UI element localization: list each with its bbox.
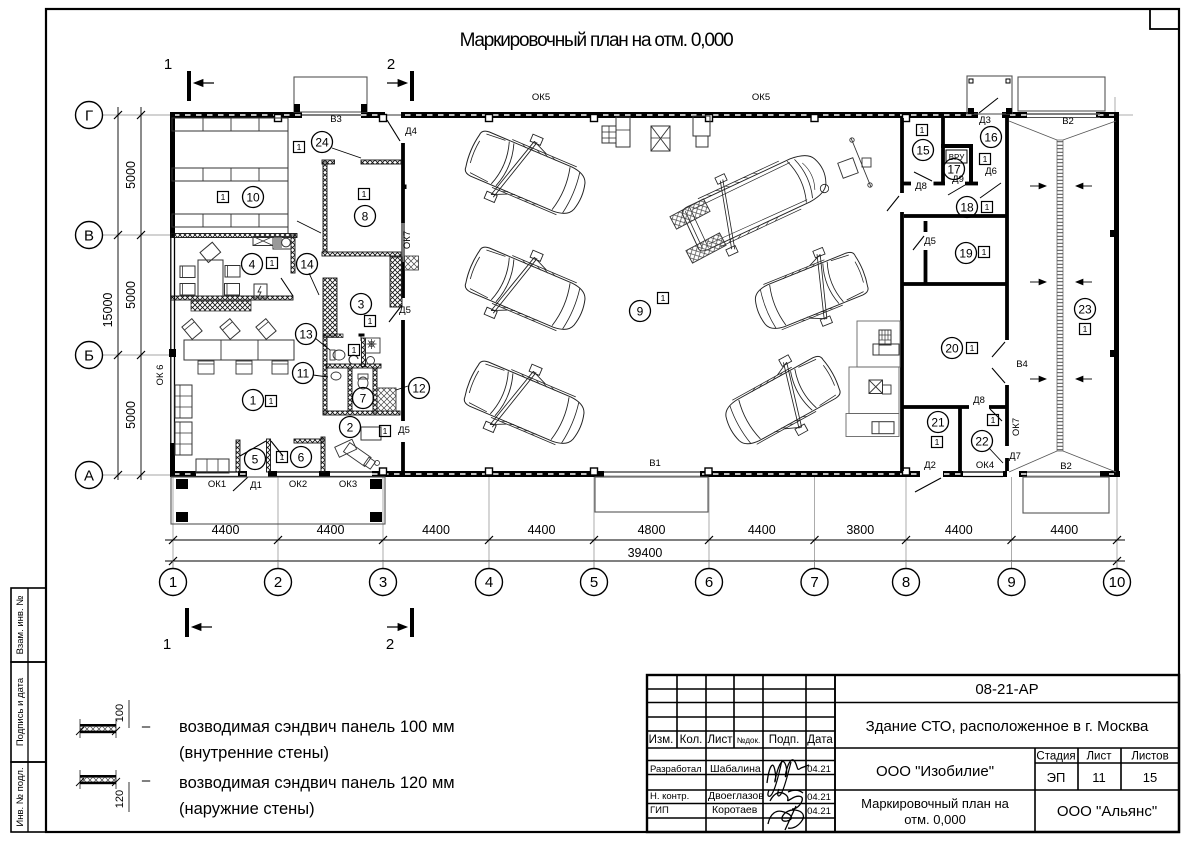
svg-text:2: 2 (387, 56, 395, 73)
svg-text:8: 8 (902, 574, 910, 591)
svg-text:2: 2 (274, 574, 282, 591)
svg-text:4400: 4400 (748, 523, 776, 537)
svg-text:Д8: Д8 (915, 181, 927, 192)
svg-text:–: – (142, 772, 151, 789)
svg-text:10: 10 (1109, 574, 1126, 591)
svg-text:ЭП: ЭП (1047, 770, 1066, 785)
svg-text:ОК4: ОК4 (976, 460, 994, 471)
svg-text:3: 3 (379, 574, 387, 591)
svg-text:04.21: 04.21 (807, 792, 831, 803)
svg-text:Д2: Д2 (924, 460, 936, 471)
svg-text:24: 24 (315, 135, 329, 149)
svg-text:9: 9 (1007, 574, 1015, 591)
svg-text:Шабалина: Шабалина (710, 763, 761, 775)
svg-text:22: 22 (975, 434, 989, 448)
svg-text:Д5: Д5 (399, 305, 411, 316)
svg-text:№док.: №док. (737, 736, 760, 745)
svg-text:Взам. инв. №: Взам. инв. № (15, 596, 26, 655)
svg-text:08-21-АР: 08-21-АР (975, 681, 1038, 698)
svg-text:1: 1 (164, 56, 172, 73)
svg-text:1: 1 (352, 345, 357, 355)
svg-text:19: 19 (959, 246, 973, 260)
svg-text:Д9: Д9 (952, 174, 964, 185)
svg-text:120: 120 (114, 790, 126, 808)
svg-text:Листов: Листов (1131, 751, 1168, 763)
svg-text:7: 7 (360, 391, 367, 405)
svg-text:1: 1 (935, 437, 940, 447)
svg-text:отм. 0,000: отм. 0,000 (904, 812, 966, 827)
svg-text:3800: 3800 (846, 523, 874, 537)
svg-text:ГИП: ГИП (650, 805, 669, 816)
svg-text:Подп.: Подп. (769, 734, 800, 746)
svg-text:1: 1 (250, 393, 257, 407)
svg-text:3: 3 (358, 297, 365, 311)
svg-text:4400: 4400 (1050, 523, 1078, 537)
svg-text:А: А (84, 468, 94, 485)
svg-text:Д5: Д5 (924, 236, 936, 247)
svg-text:В: В (84, 228, 94, 245)
svg-text:4400: 4400 (212, 523, 240, 537)
svg-text:4400: 4400 (528, 523, 556, 537)
svg-text:15: 15 (916, 143, 930, 157)
svg-text:1: 1 (982, 247, 987, 257)
svg-text:Двоеглазов: Двоеглазов (708, 790, 764, 802)
svg-text:1: 1 (383, 426, 388, 436)
svg-text:Д1: Д1 (250, 480, 262, 491)
svg-text:5000: 5000 (124, 281, 138, 309)
svg-text:1: 1 (362, 189, 367, 199)
svg-text:Коротаев: Коротаев (712, 804, 758, 816)
svg-text:Д3: Д3 (979, 115, 991, 126)
svg-text:1: 1 (297, 142, 302, 152)
svg-text:Д6: Д6 (985, 166, 997, 177)
svg-text:7: 7 (810, 574, 818, 591)
svg-text:1: 1 (163, 636, 171, 653)
svg-text:ООО "Изобилие": ООО "Изобилие" (876, 763, 994, 780)
svg-text:5: 5 (590, 574, 598, 591)
svg-text:ОК5: ОК5 (532, 92, 550, 103)
svg-text:2: 2 (347, 420, 354, 434)
svg-text:Б: Б (84, 348, 94, 365)
svg-text:Д4: Д4 (405, 126, 417, 137)
svg-text:Д8: Д8 (973, 395, 985, 406)
svg-text:–: – (142, 718, 151, 735)
svg-text:возводимая сэндвич панель 120: возводимая сэндвич панель 120 мм (179, 774, 455, 792)
svg-text:1: 1 (169, 574, 177, 591)
svg-text:В4: В4 (1016, 359, 1028, 370)
svg-text:11: 11 (297, 366, 310, 380)
svg-text:1: 1 (270, 258, 275, 268)
svg-text:Н. контр.: Н. контр. (650, 791, 689, 802)
svg-text:5000: 5000 (124, 161, 138, 189)
svg-text:6: 6 (298, 450, 305, 464)
svg-text:Инв. № подл.: Инв. № подл. (15, 767, 26, 826)
svg-text:5: 5 (252, 452, 259, 466)
svg-text:1: 1 (280, 452, 285, 462)
svg-text:ОК2: ОК2 (289, 479, 307, 490)
svg-text:14: 14 (300, 257, 314, 271)
svg-text:4400: 4400 (422, 523, 450, 537)
svg-text:1: 1 (1083, 324, 1088, 334)
svg-text:100: 100 (114, 704, 126, 722)
svg-text:21: 21 (931, 415, 945, 429)
svg-text:04.21: 04.21 (807, 806, 831, 817)
svg-text:1: 1 (983, 154, 988, 164)
svg-text:ООО "Альянс": ООО "Альянс" (1057, 803, 1157, 820)
svg-text:Д5: Д5 (398, 425, 410, 436)
svg-text:39400: 39400 (628, 546, 663, 560)
svg-text:4800: 4800 (638, 523, 666, 537)
svg-text:1: 1 (368, 316, 373, 326)
svg-text:ОК7: ОК7 (1011, 418, 1022, 436)
svg-text:10: 10 (246, 190, 260, 204)
svg-text:ОК1: ОК1 (208, 479, 226, 490)
svg-text:15: 15 (1143, 770, 1157, 785)
svg-text:ОК 6: ОК 6 (155, 365, 166, 386)
svg-text:ОК7: ОК7 (402, 231, 413, 249)
svg-text:4: 4 (249, 257, 256, 271)
svg-text:04.21: 04.21 (807, 764, 831, 775)
svg-text:1: 1 (221, 192, 226, 202)
svg-text:ОК5: ОК5 (752, 92, 770, 103)
svg-text:1: 1 (920, 125, 925, 135)
svg-text:В1: В1 (649, 458, 661, 469)
svg-text:1: 1 (985, 202, 990, 212)
svg-text:Г: Г (85, 108, 93, 125)
svg-text:23: 23 (1078, 302, 1092, 316)
svg-text:13: 13 (299, 327, 313, 341)
svg-text:Изм.: Изм. (649, 734, 674, 746)
svg-text:8: 8 (362, 209, 369, 223)
svg-text:Маркировочный план на: Маркировочный план на (861, 796, 1010, 811)
svg-text:20: 20 (945, 341, 959, 355)
svg-text:1: 1 (661, 293, 666, 303)
svg-text:4400: 4400 (317, 523, 345, 537)
svg-text:Д7: Д7 (1009, 451, 1021, 462)
svg-text:2: 2 (386, 636, 394, 653)
svg-text:Здание СТО, расположенное в г.: Здание СТО, расположенное в г. Москва (866, 718, 1149, 735)
svg-text:В2: В2 (1060, 461, 1072, 472)
svg-text:6: 6 (705, 574, 713, 591)
svg-text:Дата: Дата (807, 734, 833, 746)
svg-text:4: 4 (485, 574, 493, 591)
svg-text:В2: В2 (1062, 116, 1074, 127)
svg-text:5000: 5000 (124, 401, 138, 429)
svg-text:18: 18 (960, 200, 974, 214)
svg-text:15000: 15000 (101, 293, 115, 328)
svg-text:12: 12 (412, 381, 426, 395)
svg-text:1: 1 (970, 343, 975, 353)
svg-text:16: 16 (984, 130, 998, 144)
svg-text:Лист: Лист (708, 734, 734, 746)
svg-text:(внутренние стены): (внутренние стены) (179, 744, 329, 762)
svg-text:Маркировочный план на отм. 0,0: Маркировочный план на отм. 0,000 (460, 30, 734, 51)
svg-text:Стадия: Стадия (1036, 751, 1075, 763)
svg-text:1: 1 (991, 415, 996, 425)
svg-text:9: 9 (637, 304, 644, 318)
svg-text:11: 11 (1092, 770, 1106, 785)
svg-text:ОК3: ОК3 (339, 479, 357, 490)
svg-text:Лист: Лист (1087, 751, 1113, 763)
svg-text:(наружние стены): (наружние стены) (179, 800, 315, 818)
svg-text:Кол.: Кол. (680, 734, 703, 746)
svg-text:Подпись и дата: Подпись и дата (15, 677, 26, 746)
svg-text:Разработал: Разработал (650, 764, 702, 775)
svg-text:В3: В3 (330, 114, 342, 125)
svg-text:1: 1 (269, 396, 274, 406)
svg-text:4400: 4400 (945, 523, 973, 537)
svg-text:ВРУ: ВРУ (949, 153, 965, 162)
svg-text:возводимая сэндвич панель 100: возводимая сэндвич панель 100 мм (179, 718, 455, 736)
